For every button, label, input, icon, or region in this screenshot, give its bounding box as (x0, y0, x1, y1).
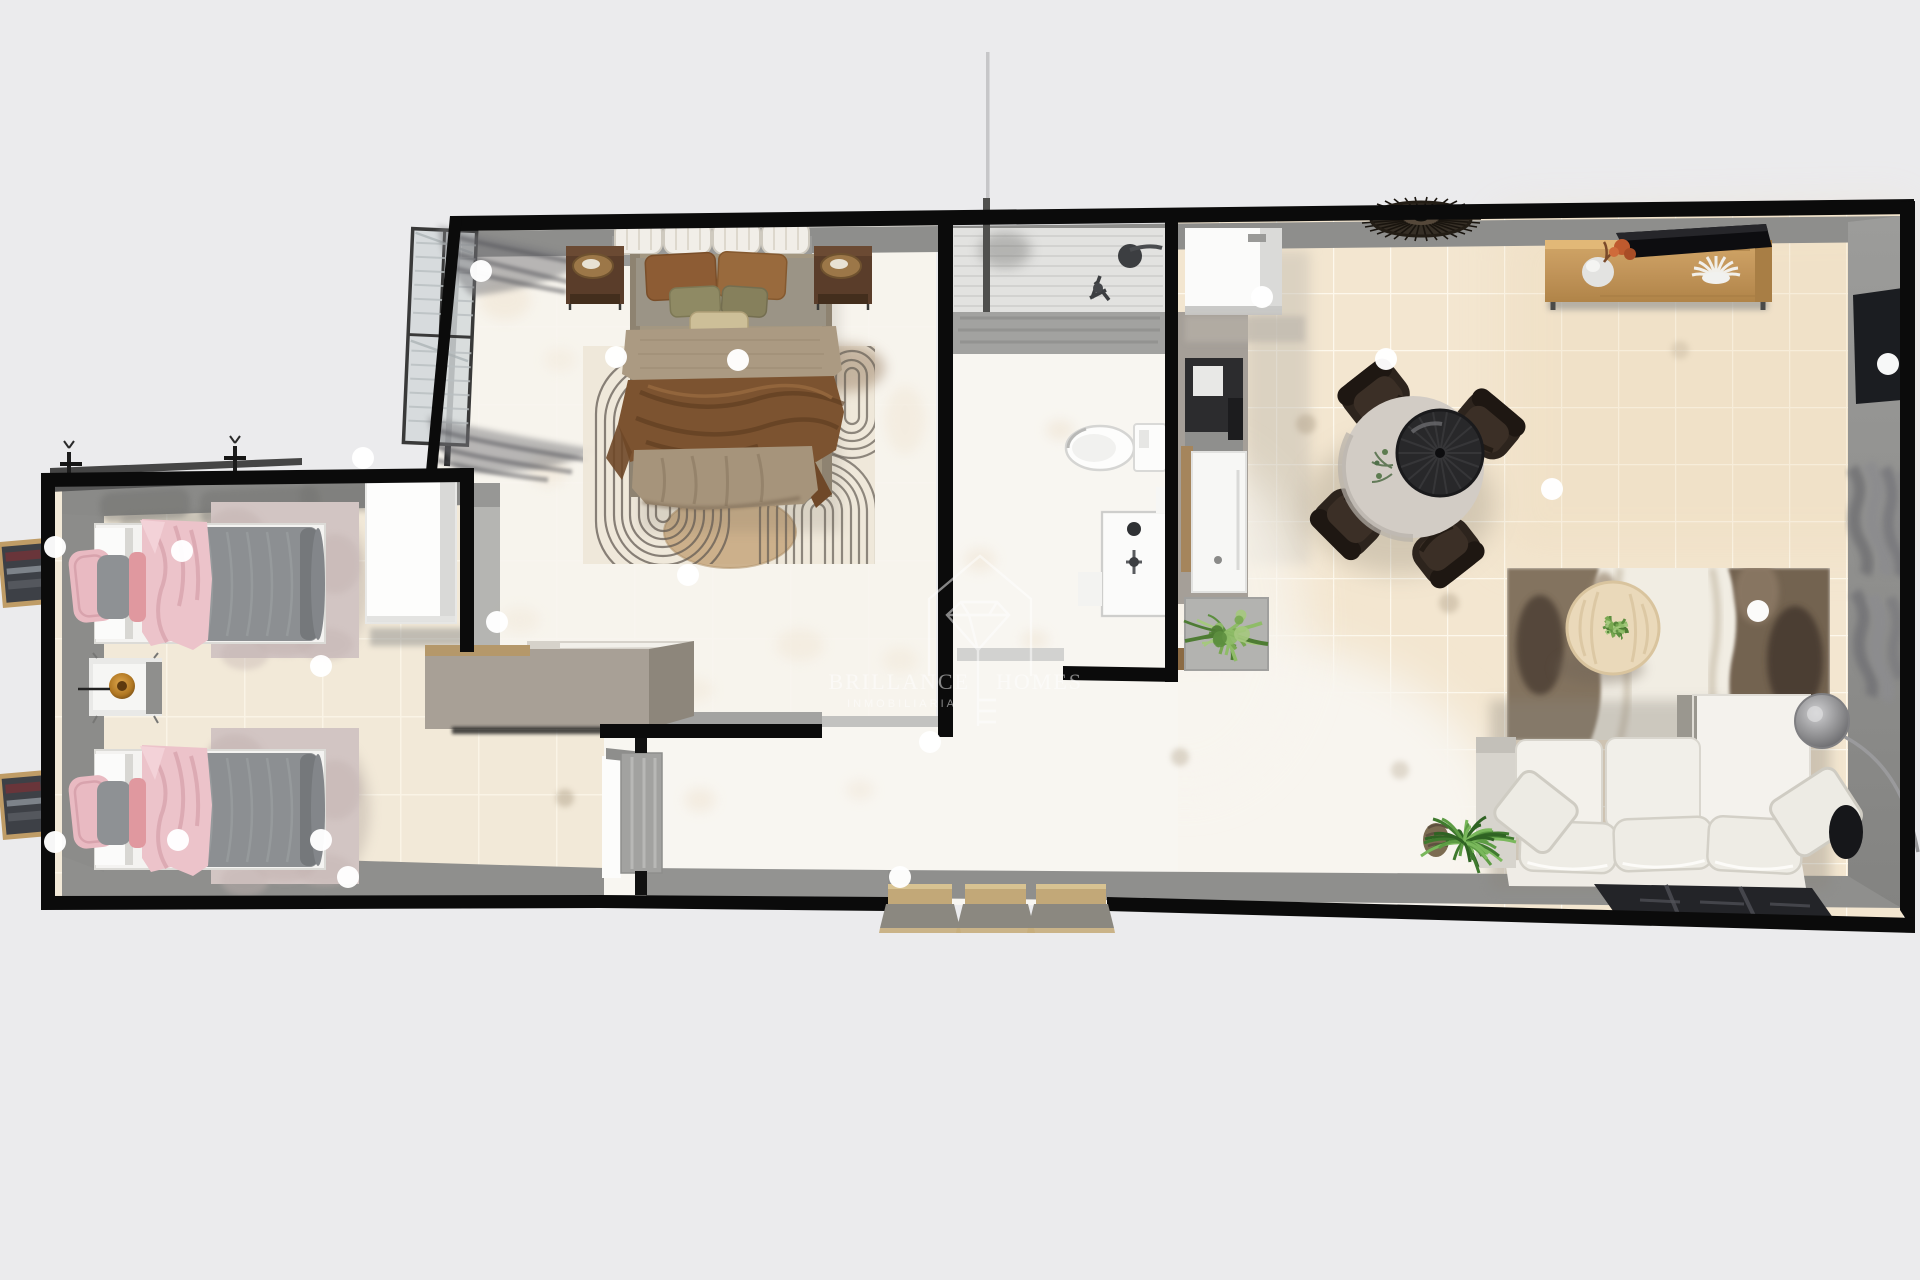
svg-text:HOMES: HOMES (996, 669, 1083, 694)
svg-text:INMOBILIARIA: INMOBILIARIA (847, 698, 957, 710)
svg-text:BRILLANCE: BRILLANCE (829, 669, 970, 694)
